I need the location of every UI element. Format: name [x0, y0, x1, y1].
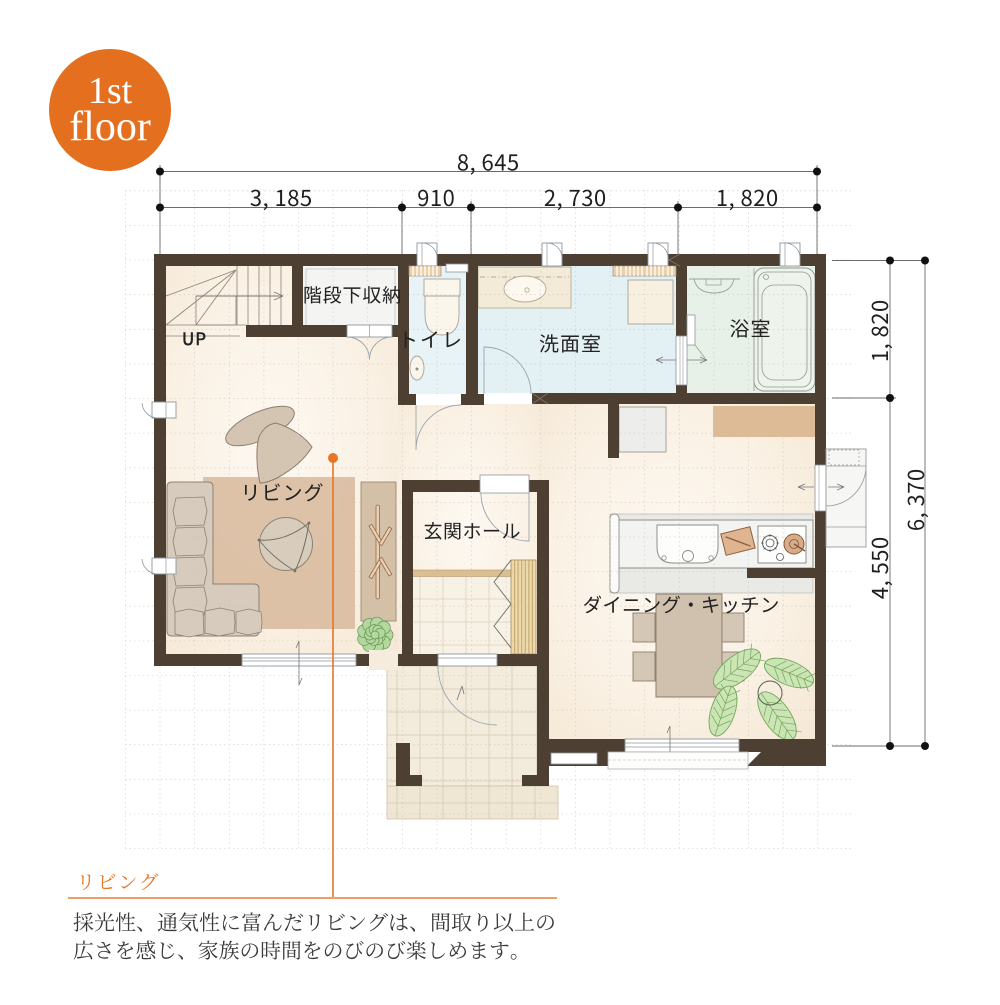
svg-text:floor: floor: [69, 104, 151, 150]
